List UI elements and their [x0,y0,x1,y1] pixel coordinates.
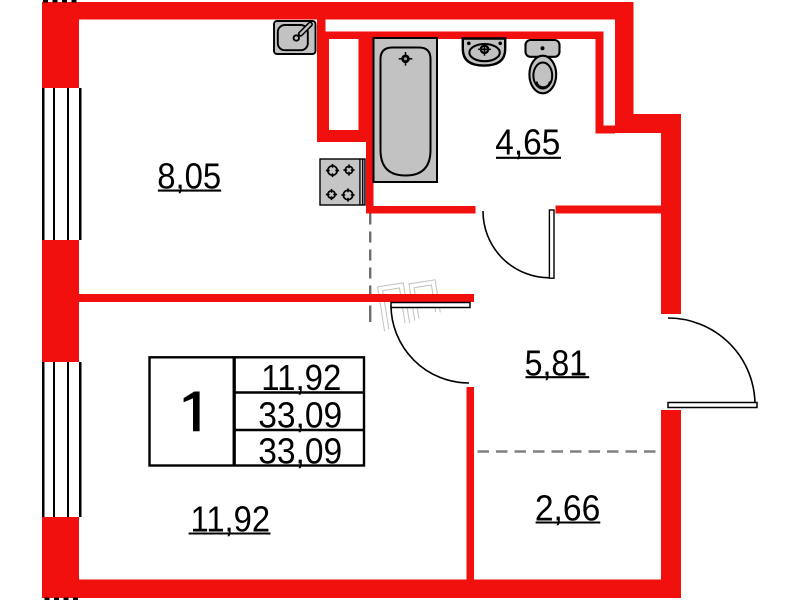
svg-text:11,92: 11,92 [261,357,341,398]
svg-text:33,09: 33,09 [258,430,342,471]
svg-text:4,65: 4,65 [495,122,560,163]
